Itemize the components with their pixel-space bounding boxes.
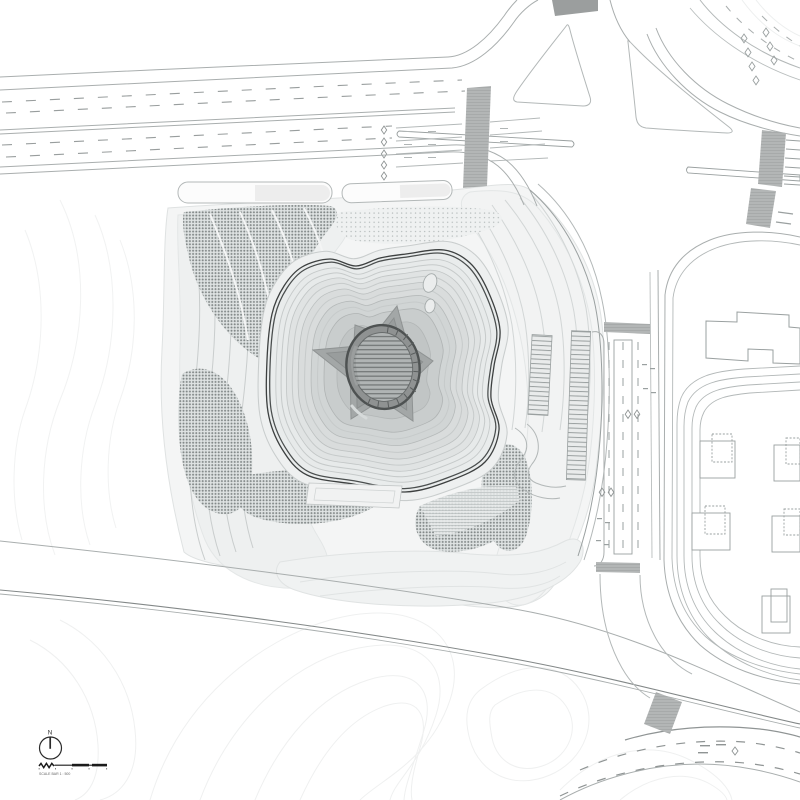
svg-text:SCALE BAR 1 : 500: SCALE BAR 1 : 500 bbox=[39, 772, 70, 776]
svg-text:N: N bbox=[48, 730, 52, 737]
